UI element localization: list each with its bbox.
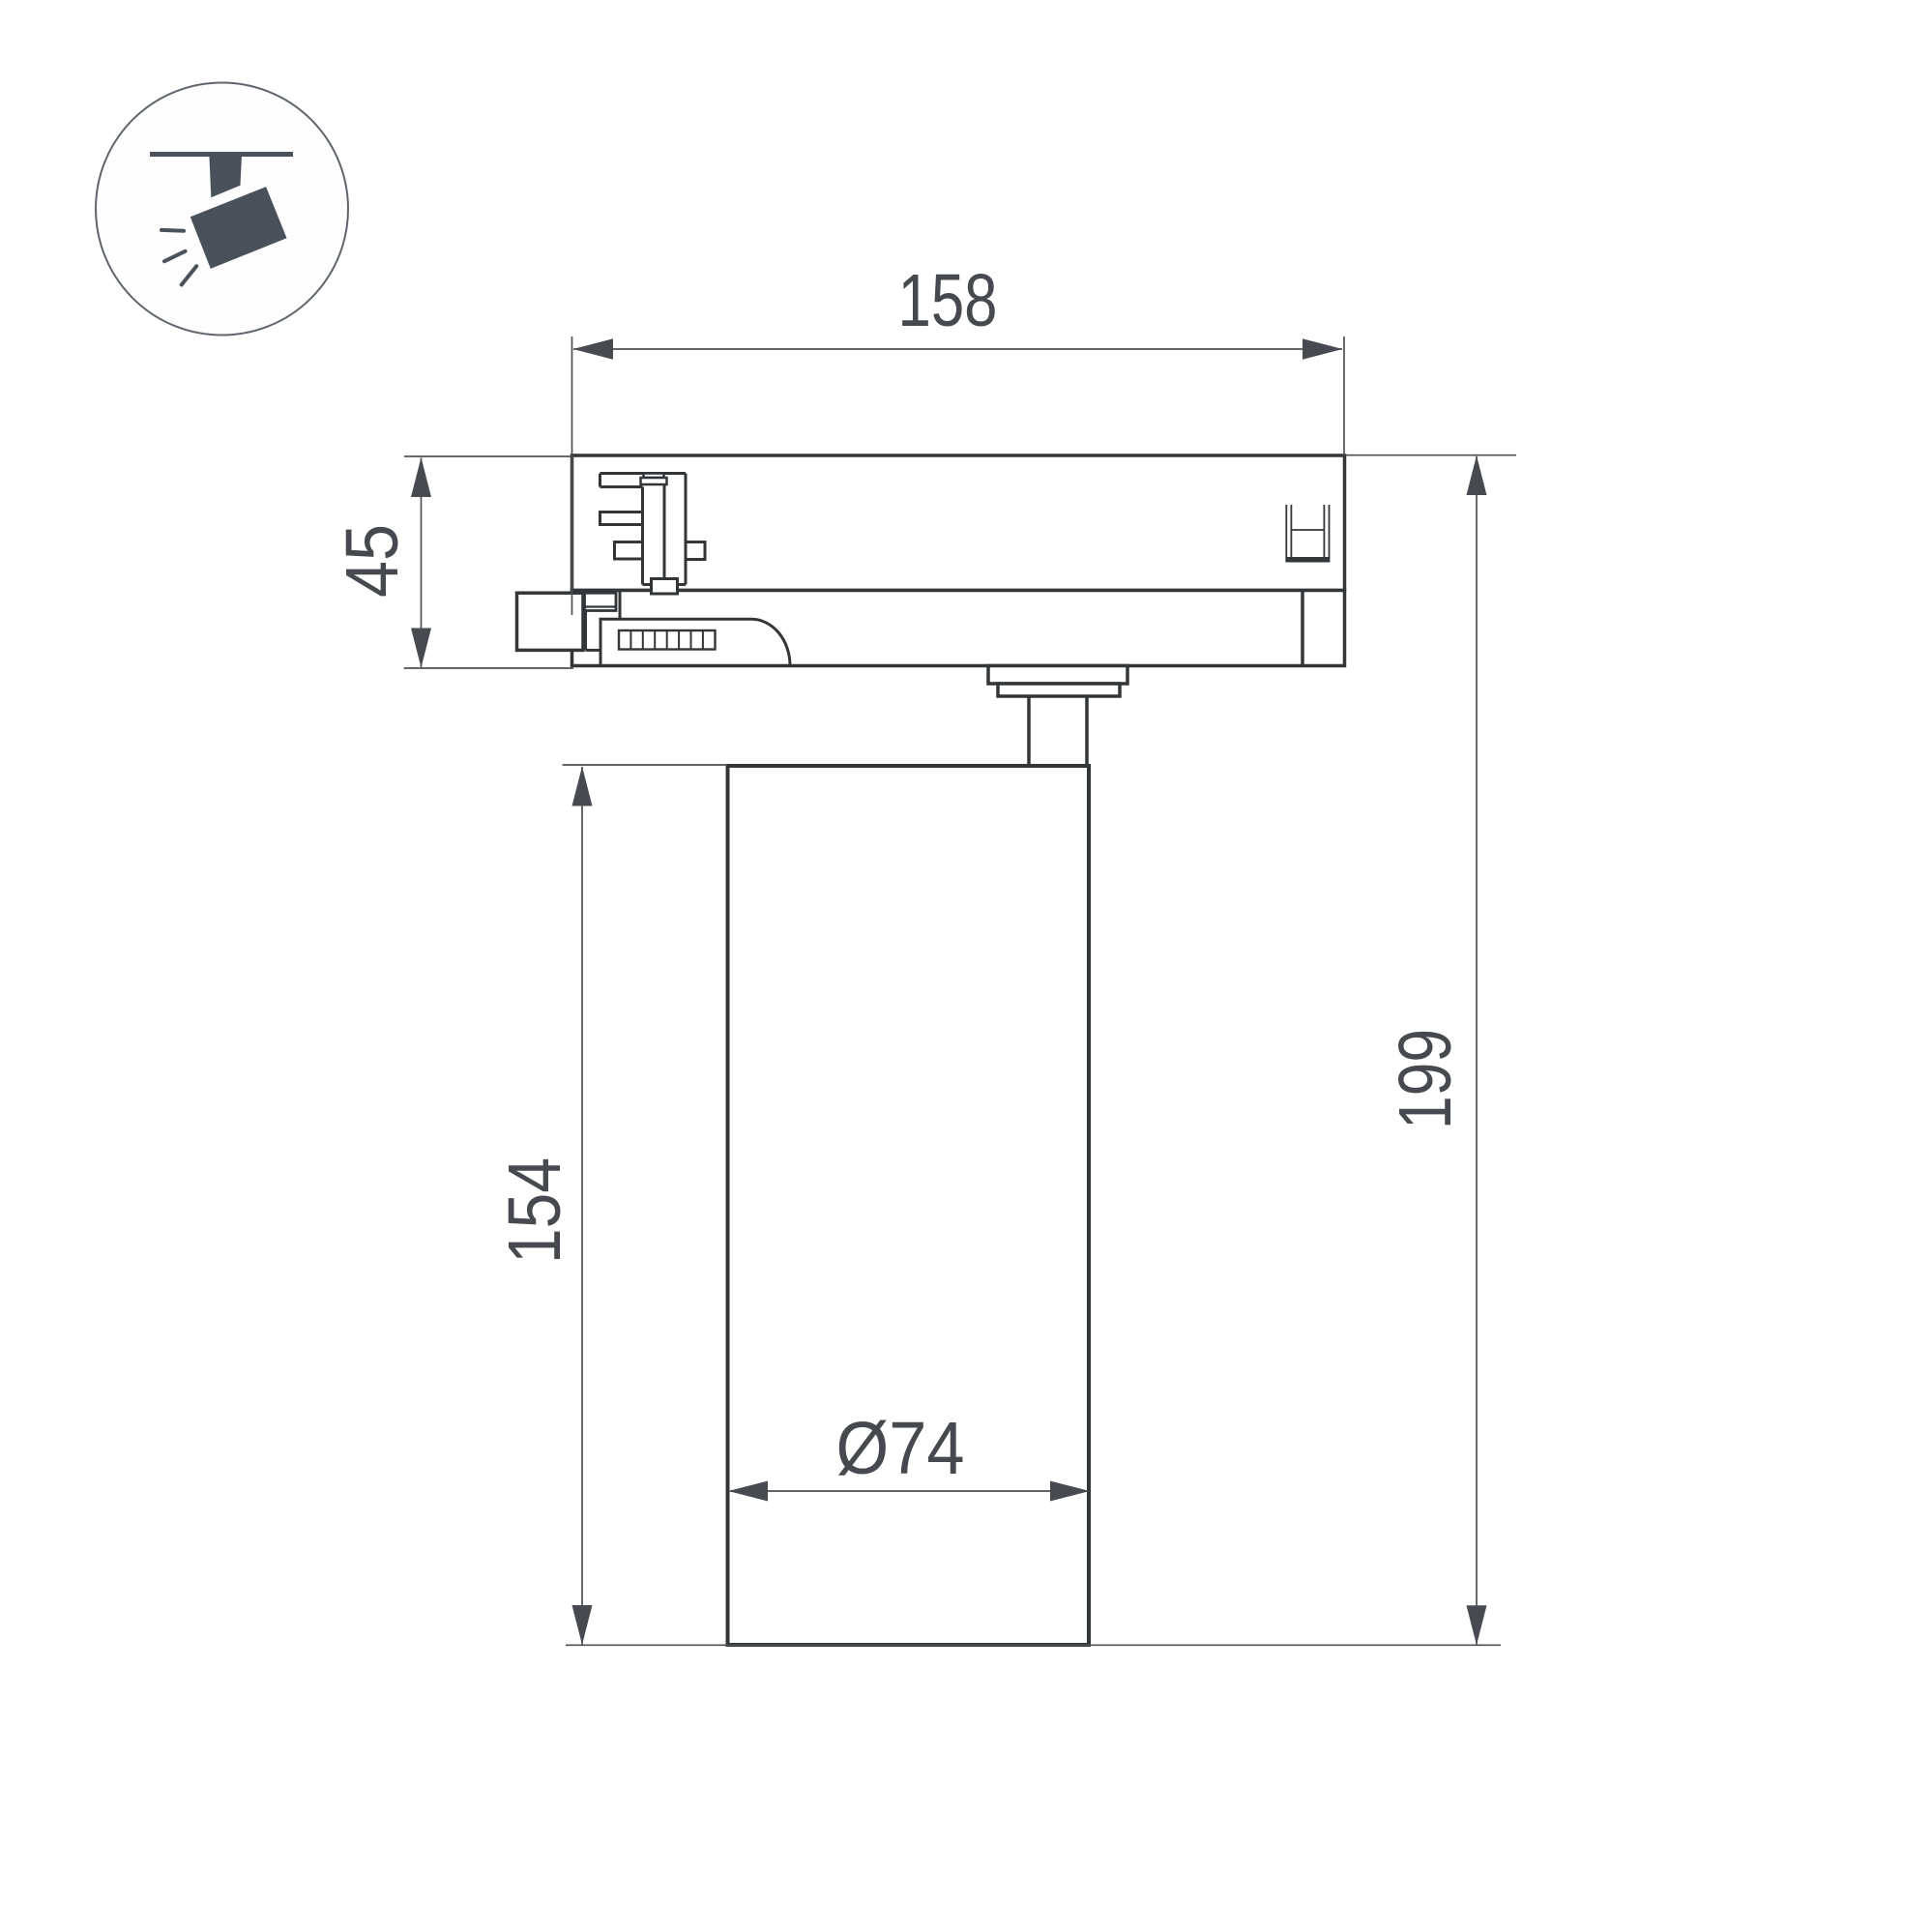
svg-text:158: 158 (898, 259, 998, 342)
svg-text:154: 154 (493, 1157, 576, 1264)
svg-text:199: 199 (1384, 1029, 1467, 1129)
svg-text:45: 45 (331, 524, 414, 598)
svg-text:Ø74: Ø74 (836, 1407, 965, 1490)
